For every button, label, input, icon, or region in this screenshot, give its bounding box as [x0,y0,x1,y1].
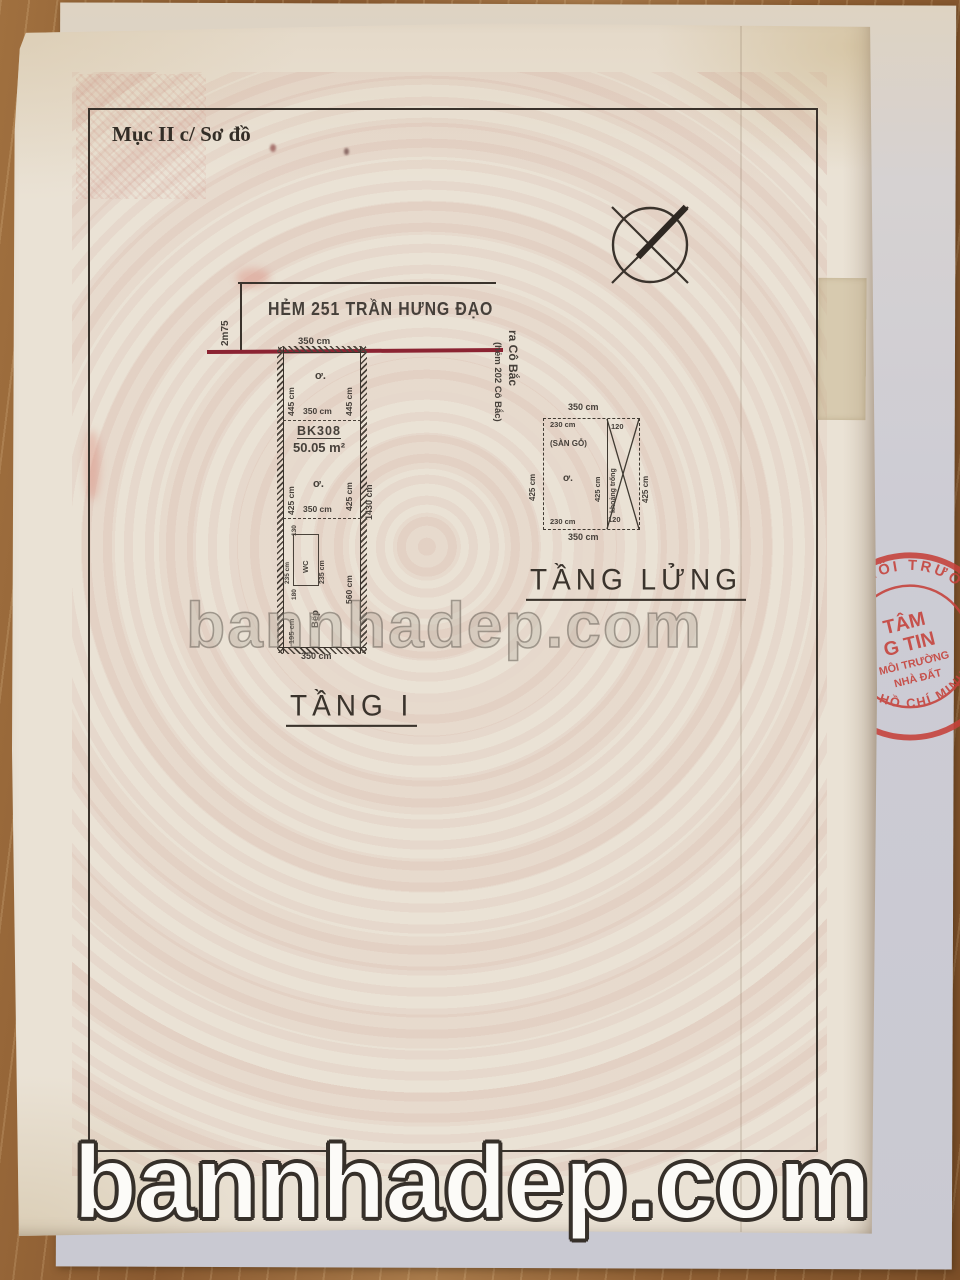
room-divider-2 [283,518,361,519]
floor1-title: TẦNG I [286,689,417,727]
parcel-code: BK308 [297,424,341,439]
photo-of-document: Ả MÔI TRƯỜNG HỒ CHÍ MINH TÂM G TIN MÔI T… [0,0,960,1280]
alley-width-dimension-line [240,284,242,350]
room-mid-label: ơ. [313,478,324,490]
north-arrow-icon [594,187,706,299]
dim-350-divider2: 350 cm [303,504,332,514]
void-label: khoảng trống [610,435,617,513]
mezz-dim-right: 425 cm [641,447,650,503]
room-divider-1 [283,420,361,421]
wc-room: WC [293,534,319,586]
dim-445-left: 445 cm [286,360,296,416]
wall-hatch-top [278,346,366,353]
scanned-page: Mục II c/ Sơ đồ 2m75 HẺM 251 TRẦN HƯNG Đ… [12,22,877,1236]
mezz-dim-top-left: 230 cm [550,420,575,429]
compass [594,187,706,304]
wc-label: WC [301,547,310,573]
watermark-bottom: bannhadep.com [73,1124,870,1243]
side-note-alley: (hẻm 202 Cô Bắc) [492,342,503,482]
mezz-dim-bottom-left: 230 cm [550,517,575,526]
watermark-center: bannhadep.com [186,588,703,662]
room-top-label: ơ. [315,370,326,382]
mezz-dim-mid: 425 cm [593,447,602,502]
alley-width-label: 2m75 [220,300,231,346]
side-note-direction: ra Cô Bắc [506,330,520,422]
dim-445-right: 445 cm [344,360,354,416]
street-name-label: HẺM 251 TRẦN HƯNG ĐẠO [268,299,493,320]
dim-425-right: 425 cm [344,456,354,511]
dim-wc-height: 235 cm [319,536,326,584]
section-header: Mục II c/ Sơ đồ [112,122,251,147]
void-cross-lines [544,419,639,529]
wood-floor-label: (SÀN GỖ) [550,439,587,448]
mezz-dim-left: 425 cm [528,445,537,501]
dim-wc-side: 235 cm [284,538,291,584]
mezz-dim-top-right: 120 [611,422,624,431]
mezzanine-plan: 350 cm 230 cm 120 425 cm (SÀN GỖ) ơ. 425… [543,418,640,530]
alley-dimension-line [238,282,496,284]
mezz-dim-bottom-right: 120 [608,515,621,524]
mezz-dim-bottom: 350 cm [568,532,599,542]
dim-350-divider1: 350 cm [303,406,332,416]
tape-strip [817,278,866,420]
mezz-dim-top: 350 cm [568,402,599,412]
mezz-room-label: ơ. [563,473,573,484]
dim-425-left: 425 cm [286,460,296,515]
dim-1430-total: 1430 cm [364,446,374,520]
parcel-area: 50.05 m² [293,440,345,455]
